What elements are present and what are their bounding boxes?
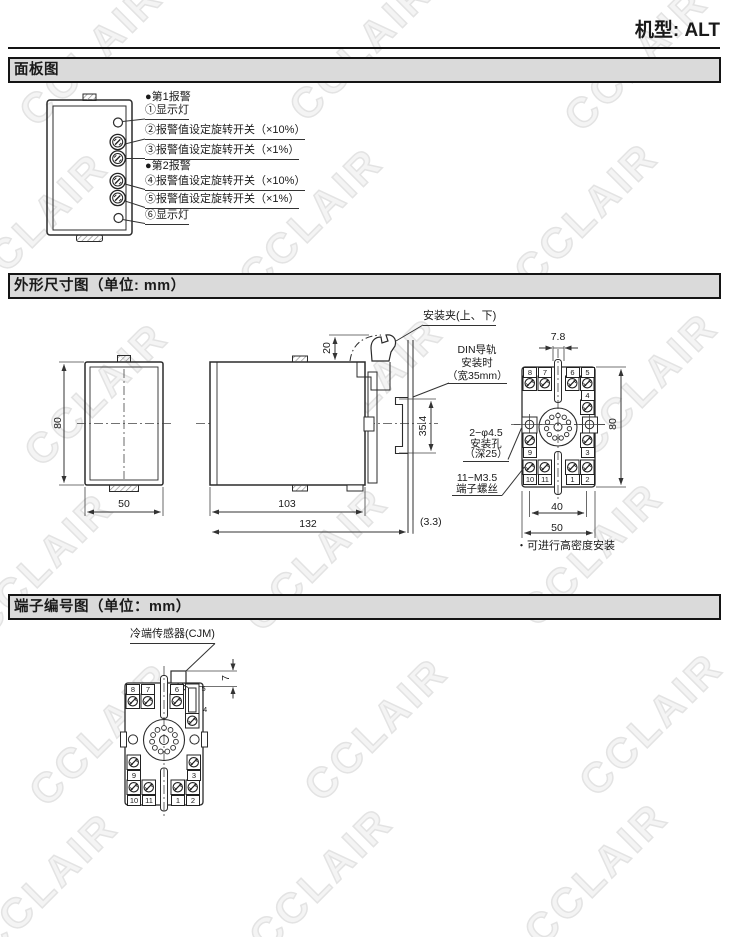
page-title-model: 机型: ALT: [420, 15, 720, 42]
dim-front-height: 80: [52, 403, 64, 443]
watermark: CCLAIR: [295, 647, 458, 810]
alarm1-header: ●第1报警: [145, 91, 191, 104]
front-view-drawing: [59, 356, 171, 517]
section-title: 端子编号图（单位：mm）: [10, 596, 191, 618]
terminal-number: 9: [523, 447, 537, 458]
watermark: CCLAIR: [565, 302, 728, 465]
dim-total-depth: 132: [288, 518, 328, 530]
watermark: CCLAIR: [570, 642, 729, 805]
label-cjm-sensor: 冷端传感器(CJM): [130, 628, 215, 644]
label-switch2: ②报警值设定旋转开关（×10%）: [145, 124, 305, 140]
terminal-number: 3: [187, 770, 201, 781]
terminal-number: 5: [581, 367, 595, 378]
watermark: CCLAIR: [20, 652, 183, 815]
terminal-number: 6: [566, 367, 580, 378]
panel-device-drawing: [47, 94, 145, 242]
terminal-number: 11: [538, 474, 552, 485]
terminal-number: 1: [566, 474, 580, 485]
label-line: （宽35mm）: [447, 370, 507, 383]
terminal-number: 7: [538, 367, 552, 378]
label-lamp1: ①显示灯: [145, 104, 189, 120]
dim-rear-pitch: 7.8: [538, 331, 578, 343]
label-lamp6: ⑥显示灯: [145, 209, 189, 225]
dim-clip-offset: 20: [321, 328, 333, 368]
label-switch5: ⑤报警值设定旋转开关（×1%）: [145, 193, 299, 209]
watermark: CCLAIR: [290, 307, 453, 470]
watermark: CCLAIR: [0, 802, 128, 937]
terminal-number: 8: [126, 684, 140, 695]
label-line: 安装时: [447, 357, 507, 370]
label-line: 11−M3.5: [452, 473, 502, 484]
terminal-number: 9: [127, 770, 141, 781]
terminal-number: 4: [581, 390, 595, 401]
header-rule: [8, 47, 720, 49]
label-mounting-clip: 安装夹(上、下): [423, 310, 496, 326]
terminal-number: 2: [581, 474, 595, 485]
label-line: （深25）: [463, 449, 509, 460]
watermark: CCLAIR: [240, 797, 403, 937]
watermark: CCLAIR: [505, 132, 668, 295]
terminal-number: 7: [141, 684, 155, 695]
dim-front-width: 50: [104, 498, 144, 510]
label-switch3: ③报警值设定旋转开关（×1%）: [145, 144, 299, 160]
terminal-number: 1: [171, 795, 185, 806]
section-header-outline: 外形尺寸图（单位: mm）: [8, 273, 721, 299]
dim-rail-gap: (3.3): [420, 516, 456, 528]
label-line: 2−φ4.5: [463, 428, 509, 439]
terminal-number: 8: [523, 367, 537, 378]
watermark: CCLAIR: [15, 312, 178, 475]
label-switch4: ④报警值设定旋转开关（×10%）: [145, 175, 305, 191]
dim-rear-height: 80: [607, 404, 619, 444]
alarm2-header: ●第2报警: [145, 160, 191, 173]
terminal-number: 11: [142, 795, 156, 806]
terminal-number: 2: [186, 795, 200, 806]
label-terminal-screws: 11−M3.5 端子螺丝: [452, 473, 502, 496]
label-mounting-holes: 2−φ4.5 安装孔 （深25）: [463, 428, 509, 462]
line-art-layer: [0, 0, 729, 937]
terminal-number: 10: [127, 795, 141, 806]
dim-body-depth: 103: [267, 498, 307, 510]
section-header-terminal: 端子编号图（单位：mm）: [8, 594, 721, 620]
section-header-panel: 面板图: [8, 57, 721, 83]
terminal-number: 6: [170, 684, 184, 695]
datasheet-page: { "header": { "model_label": "机型: ALT" }…: [0, 0, 729, 937]
dim-rail-height: 35.4: [417, 406, 429, 446]
section-title: 外形尺寸图（单位: mm）: [10, 275, 186, 297]
label-line: DIN导轨: [447, 344, 507, 357]
dim-rear-width: 50: [537, 522, 577, 534]
terminal-number: 4: [203, 705, 207, 714]
section-title: 面板图: [10, 59, 59, 81]
dim-cjm-height: 7: [220, 658, 232, 698]
terminal-number: 3: [581, 447, 595, 458]
terminal-number: 10: [523, 474, 537, 485]
watermark: CCLAIR: [515, 792, 678, 937]
label-line: 端子螺丝: [452, 484, 502, 495]
density-note: ・可进行高密度安装: [516, 537, 615, 553]
terminal-number: 5: [202, 684, 206, 693]
dim-rear-hole-span: 40: [537, 501, 577, 513]
label-din-rail: DIN导轨 安装时 （宽35mm）: [447, 344, 507, 384]
